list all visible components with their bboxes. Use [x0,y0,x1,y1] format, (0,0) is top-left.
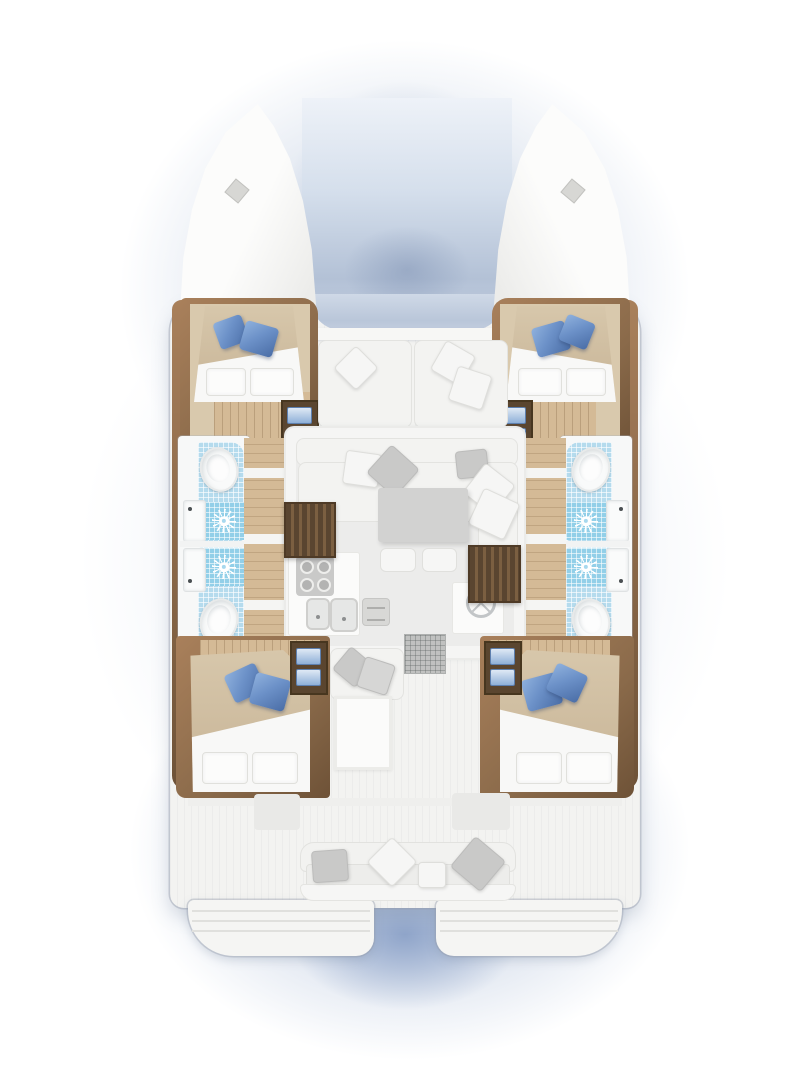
door-opening [520,468,566,478]
shower-rose-icon [212,555,236,579]
corridor-starboard [520,438,566,652]
transom-steps-starboard [436,900,622,956]
shower-rose-icon [212,509,236,533]
faucet-icon [619,579,623,583]
deck-locker [334,696,392,770]
shower-starboard-aft [566,548,606,586]
step-tread [490,648,515,665]
door-opening [520,534,566,544]
cabin-aft-starboard [480,636,634,798]
pillow [566,752,612,784]
pillow [202,752,248,784]
foredeck-notch [311,294,503,330]
burner-icon [317,560,331,574]
hull-entry-steps [484,641,522,695]
faucet-icon [619,507,623,511]
galley-sink [306,598,330,630]
shower-starboard-forward [566,502,606,540]
door-opening [244,468,290,478]
cockpit-side-seat-port [254,794,300,830]
companionway-stairs-starboard [468,545,521,603]
burner-icon [300,578,314,592]
cabin-aft-port [176,636,330,798]
saloon [286,428,524,658]
stool [380,548,416,572]
galley-sink [330,598,358,632]
transom-steps-port [188,900,374,956]
pillow [250,368,294,396]
faucet-icon [188,579,192,583]
sink [183,500,206,542]
bathroom-divider-wall [562,541,630,547]
saloon-table [378,488,468,542]
door-opening [520,600,566,610]
pillow [252,752,298,784]
entry-mat [404,634,446,674]
pillow [516,752,562,784]
pillow [206,368,246,396]
cockpit-side-seat-starboard [452,793,510,830]
step-tread [287,407,312,424]
pillow [518,368,562,396]
step-tread [490,669,515,686]
companionway-stairs-port [284,502,336,558]
shower-rose-icon [574,509,598,533]
catamaran-floor-plan [0,0,810,1080]
pillow [566,368,606,396]
stool [422,548,457,572]
door-opening [244,600,290,610]
cooktop [296,556,334,596]
pillow [311,849,349,883]
oven-icon [362,598,390,626]
sink [606,500,629,542]
burner-icon [317,578,331,592]
sink [183,548,206,592]
pillow [418,862,446,888]
faucet-icon [188,507,192,511]
forward-cockpit-bench-port [318,340,412,428]
hull-entry-steps [290,641,328,695]
bow-hatch-icon [224,178,249,203]
bow-hatch-icon [560,178,585,203]
step-tread [296,669,321,686]
shower-port-aft [204,548,244,586]
forward-crossbeam [304,328,510,340]
shower-port-forward [204,502,244,540]
shower-rose-icon [574,555,598,579]
sink [606,548,629,592]
burner-icon [300,560,314,574]
bathroom-divider-wall [180,541,248,547]
step-tread [296,648,321,665]
